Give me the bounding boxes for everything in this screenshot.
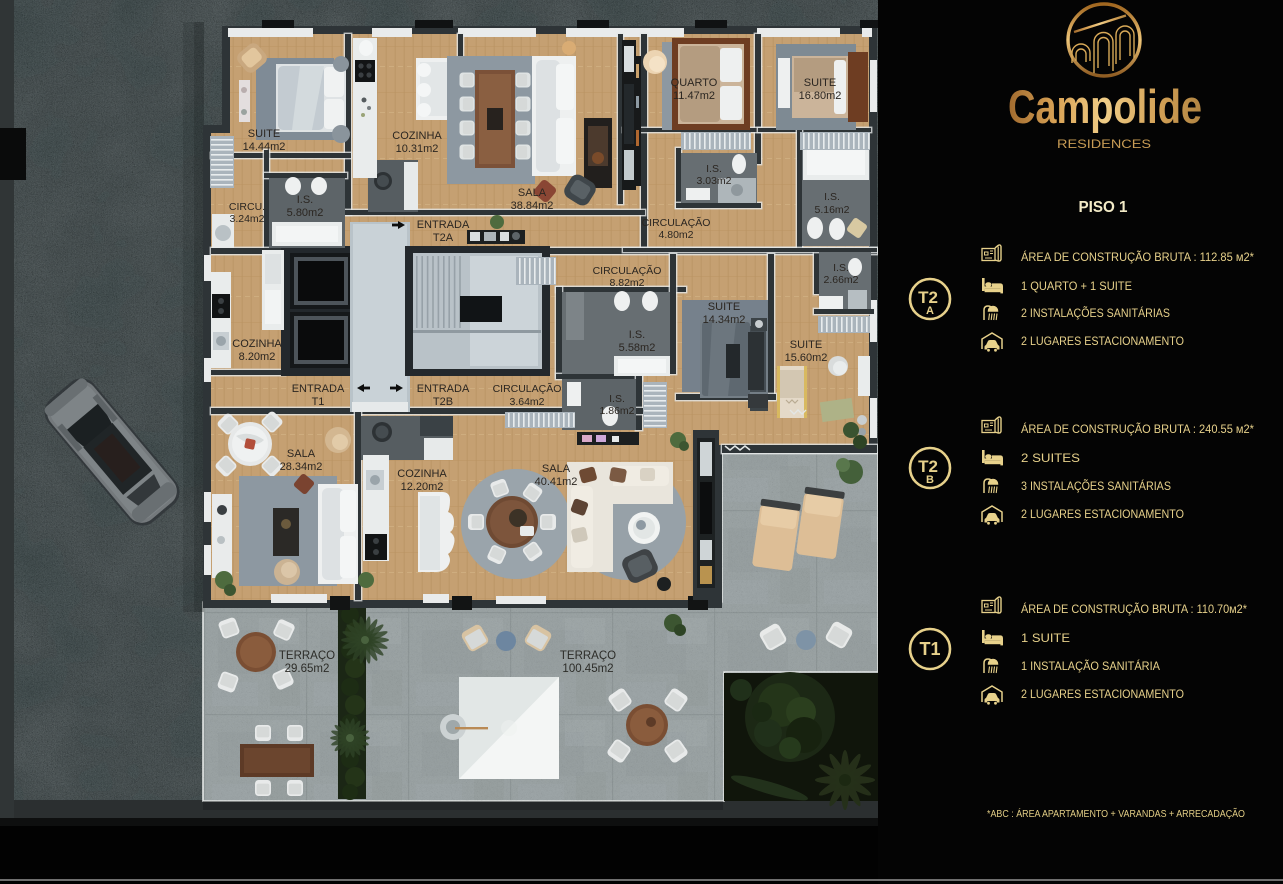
svg-text:SUITE: SUITE [804, 77, 836, 89]
svg-text:5.58m2: 5.58m2 [619, 342, 656, 354]
svg-text:100.45m2: 100.45m2 [562, 663, 613, 675]
svg-text:14.44m2: 14.44m2 [243, 141, 286, 153]
svg-text:I.S.: I.S. [706, 163, 722, 175]
svg-text:3.03m2: 3.03m2 [696, 175, 731, 187]
svg-text:COZINHA: COZINHA [397, 468, 447, 480]
svg-text:T2B: T2B [433, 396, 453, 408]
svg-text:11.47m2: 11.47m2 [673, 90, 715, 102]
svg-text:A: A [926, 305, 934, 317]
svg-text:*ABC : ÁREA APARTAMENTO + VAR: *ABC : ÁREA APARTAMENTO + VARANDAS + ARR… [987, 809, 1245, 820]
svg-text:CIRCULAÇÃO: CIRCULAÇÃO [593, 264, 662, 277]
svg-text:1 QUARTO + 1 SUITE: 1 QUARTO + 1 SUITE [1021, 279, 1132, 293]
svg-text:3 INSTALAÇÕES SANITÁRIAS: 3 INSTALAÇÕES SANITÁRIAS [1021, 478, 1171, 493]
svg-text:1 INSTALAÇÃO SANITÁRIA: 1 INSTALAÇÃO SANITÁRIA [1021, 658, 1161, 673]
svg-text:SUITE: SUITE [248, 128, 280, 140]
svg-text:4.80m2: 4.80m2 [658, 229, 693, 241]
svg-text:1.86m2: 1.86m2 [599, 405, 634, 417]
svg-text:16.80m2: 16.80m2 [799, 90, 842, 102]
svg-text:12.20m2: 12.20m2 [401, 481, 444, 493]
svg-text:2.66m2: 2.66m2 [823, 274, 858, 286]
svg-text:3.64m2: 3.64m2 [509, 396, 544, 408]
svg-text:10.31m2: 10.31m2 [396, 143, 439, 155]
svg-text:40.41m2: 40.41m2 [535, 476, 578, 488]
svg-text:15.60m2: 15.60m2 [785, 352, 828, 364]
svg-text:2 SUITES: 2 SUITES [1021, 451, 1080, 465]
svg-text:2 LUGARES ESTACIONAMENTO: 2 LUGARES ESTACIONAMENTO [1021, 334, 1184, 348]
svg-text:8.20m2: 8.20m2 [239, 351, 276, 363]
svg-text:2 INSTALAÇÕES SANITÁRIAS: 2 INSTALAÇÕES SANITÁRIAS [1021, 305, 1170, 320]
svg-text:Campolide: Campolide [1008, 80, 1202, 133]
svg-text:SUITE: SUITE [708, 301, 740, 313]
svg-text:ENTRADA: ENTRADA [417, 383, 470, 395]
svg-text:8.82m2: 8.82m2 [609, 277, 644, 289]
svg-text:B: B [926, 474, 934, 486]
svg-text:1 SUITE: 1 SUITE [1021, 631, 1070, 645]
svg-text:ÁREA DE CONSTRUÇÃO BRUTA : 24: ÁREA DE CONSTRUÇÃO BRUTA : 240.55 м2* [1021, 421, 1254, 436]
svg-text:QUARTO: QUARTO [671, 77, 718, 89]
svg-text:CIRCULAÇÃO: CIRCULAÇÃO [642, 216, 711, 229]
svg-text:SALA: SALA [542, 463, 571, 475]
svg-text:RESIDENCES: RESIDENCES [1057, 137, 1151, 151]
svg-text:5.16m2: 5.16m2 [814, 204, 849, 216]
svg-text:2 LUGARES ESTACIONAMENTO: 2 LUGARES ESTACIONAMENTO [1021, 507, 1184, 521]
svg-text:COZINHA: COZINHA [392, 130, 442, 142]
svg-text:29.65m2: 29.65m2 [285, 663, 330, 675]
svg-text:5.80m2: 5.80m2 [287, 207, 324, 219]
svg-text:I.S.: I.S. [297, 194, 314, 206]
svg-text:ÁREA DE CONSTRUÇÃO BRUTA : 11: ÁREA DE CONSTRUÇÃO BRUTA : 110.70м2* [1021, 601, 1247, 616]
svg-text:ENTRADA: ENTRADA [292, 383, 345, 395]
svg-text:28.34m2: 28.34m2 [280, 461, 323, 473]
svg-text:COZINHA: COZINHA [232, 338, 282, 350]
svg-text:I.S.: I.S. [629, 329, 646, 341]
svg-text:CIRCULAÇÃO: CIRCULAÇÃO [493, 382, 562, 395]
svg-text:14.34m2: 14.34m2 [703, 314, 746, 326]
svg-text:3.24m2: 3.24m2 [229, 213, 264, 225]
svg-text:CIRCU.: CIRCU. [229, 201, 265, 213]
svg-text:I.S.: I.S. [833, 262, 849, 274]
svg-text:2 LUGARES ESTACIONAMENTO: 2 LUGARES ESTACIONAMENTO [1021, 687, 1184, 701]
svg-text:ENTRADA: ENTRADA [417, 219, 470, 231]
svg-text:I.S.: I.S. [609, 393, 625, 405]
svg-text:SUITE: SUITE [790, 339, 822, 351]
svg-text:I.S.: I.S. [824, 191, 840, 203]
svg-text:SALA: SALA [518, 187, 547, 199]
svg-text:PISO 1: PISO 1 [1079, 199, 1128, 216]
svg-text:T2A: T2A [433, 232, 454, 244]
svg-text:TERRAÇO: TERRAÇO [279, 650, 335, 662]
svg-text:TERRAÇO: TERRAÇO [560, 650, 616, 662]
svg-text:SALA: SALA [287, 448, 316, 460]
svg-text:T1: T1 [312, 396, 325, 408]
svg-text:38.84m2: 38.84m2 [511, 200, 554, 212]
svg-text:T1: T1 [919, 639, 940, 659]
svg-text:ÁREA DE CONSTRUÇÃO BRUTA : 11: ÁREA DE CONSTRUÇÃO BRUTA : 112.85 м2* [1021, 249, 1254, 264]
